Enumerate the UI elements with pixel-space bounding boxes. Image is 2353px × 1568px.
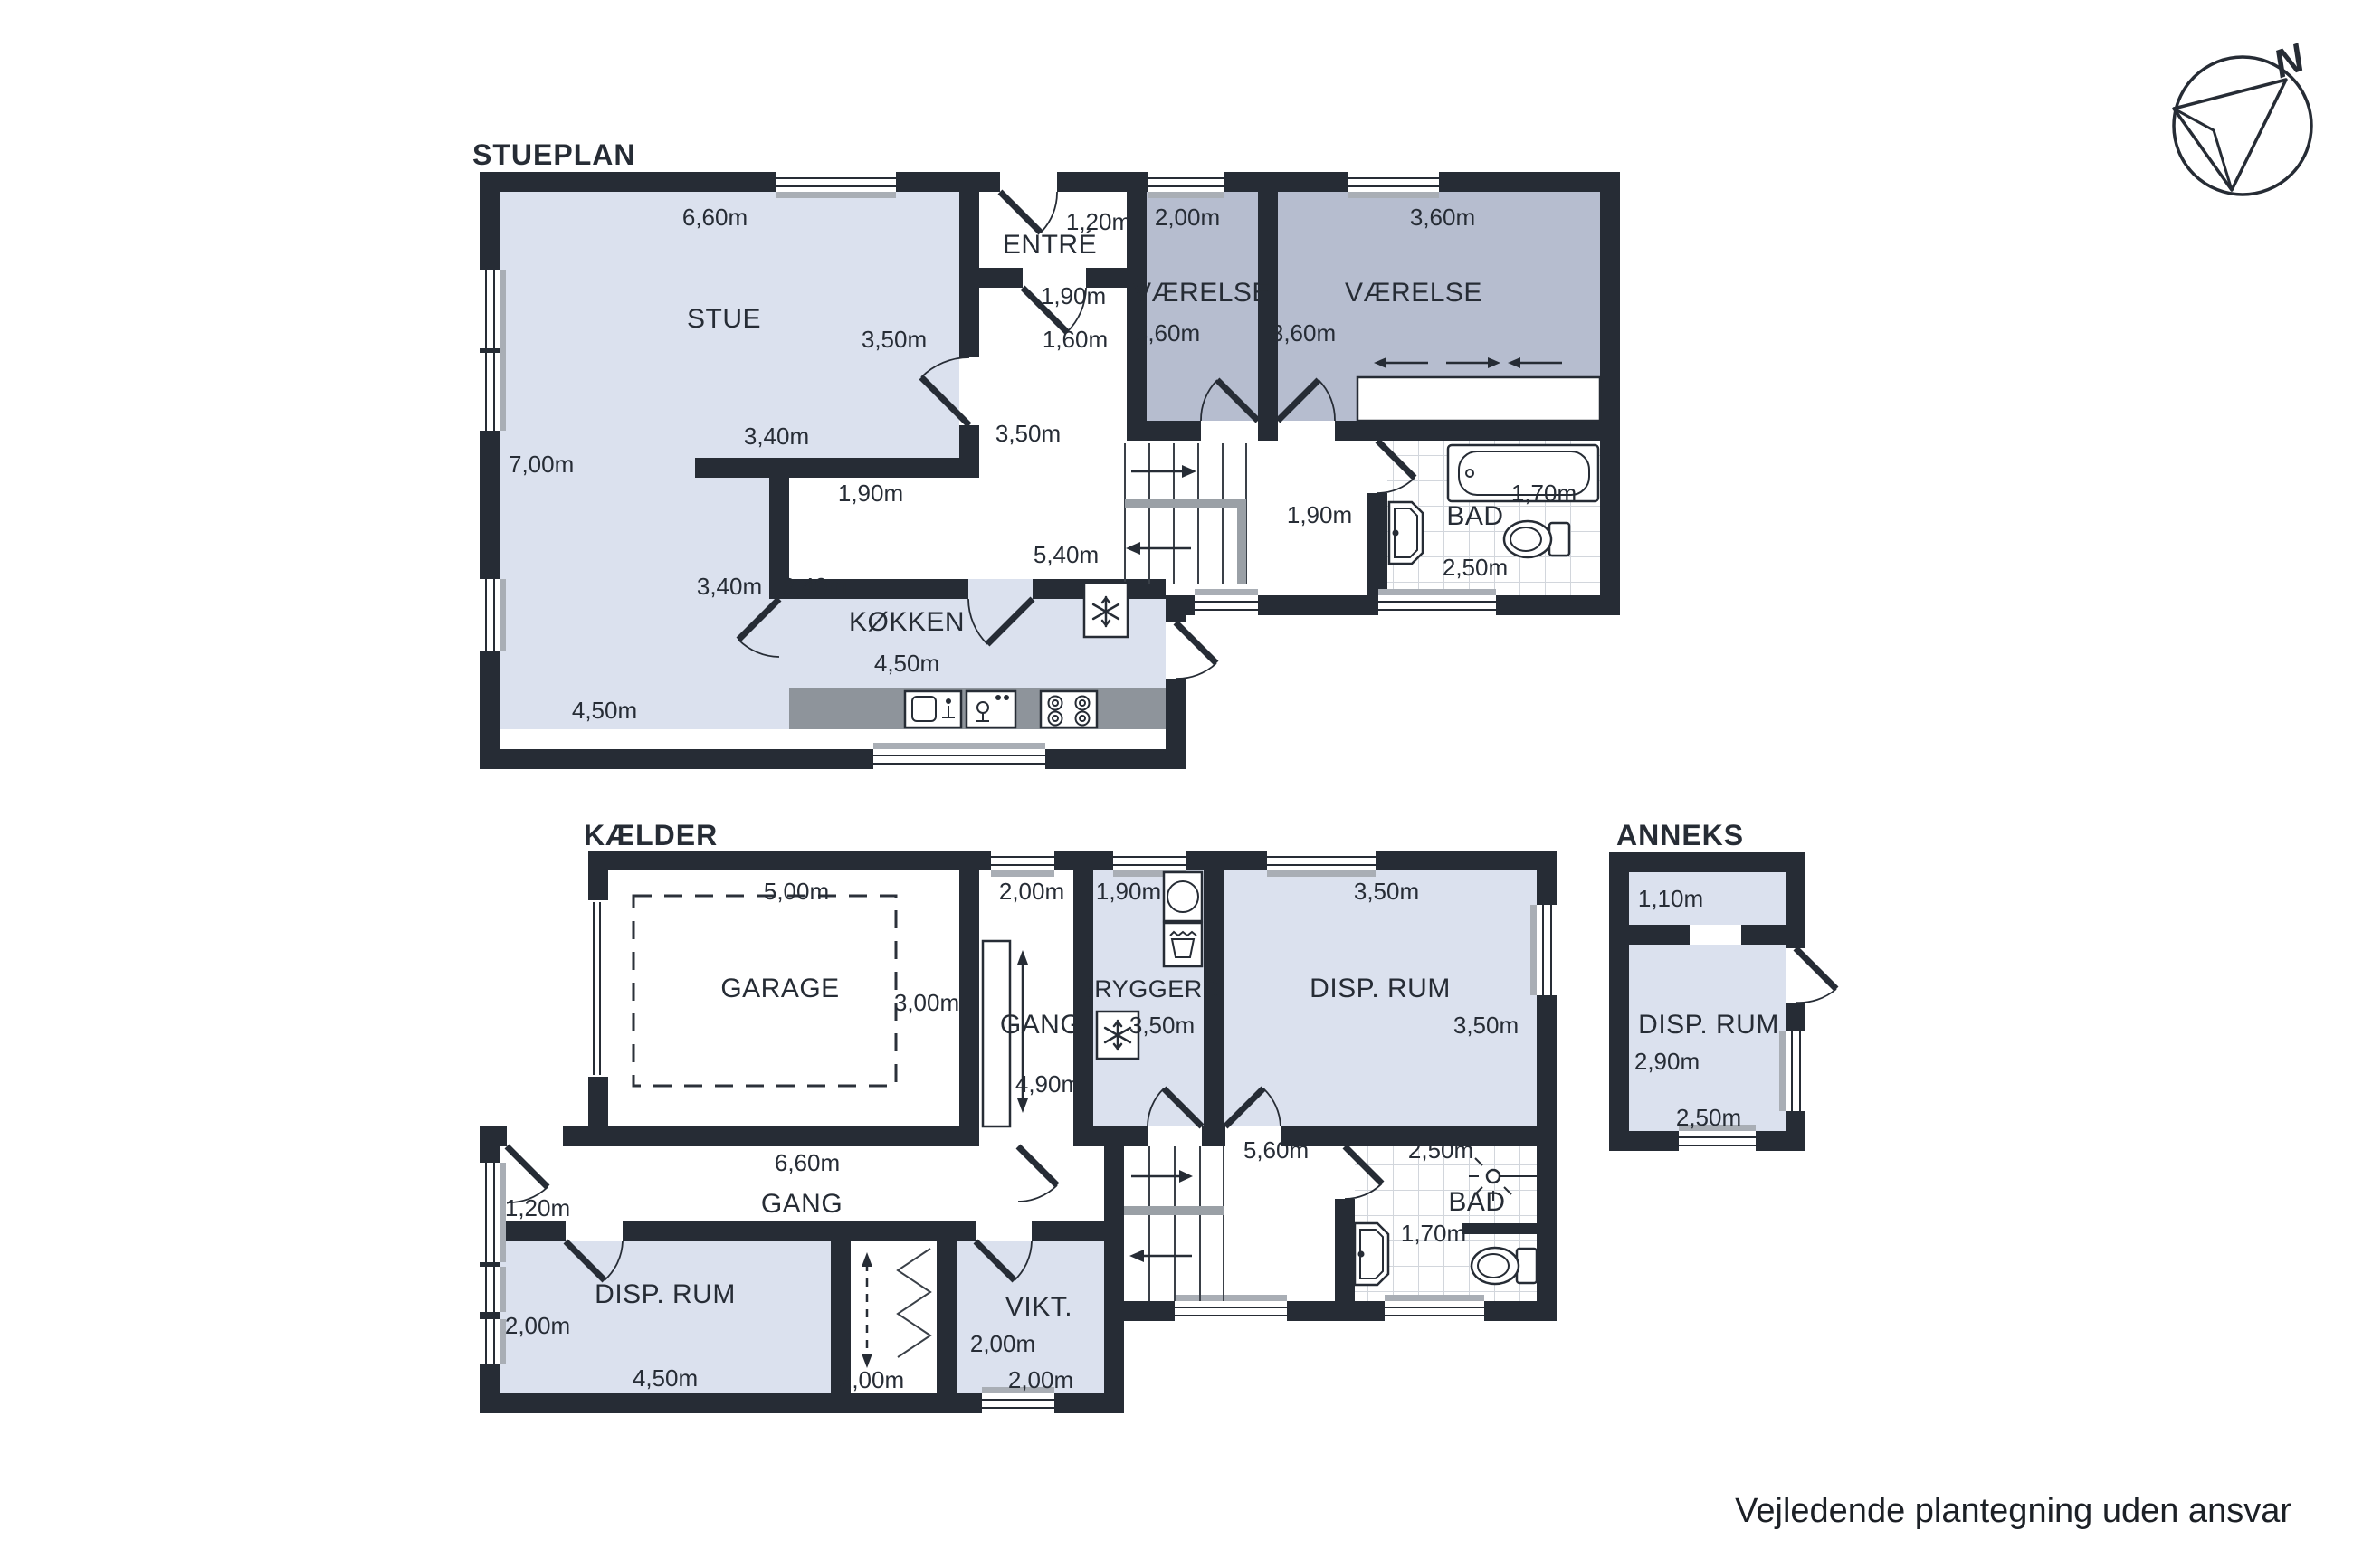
dim-stue-top: 6,60m <box>682 204 748 231</box>
dim-bad-kaelder-top: 2,50m <box>1408 1136 1473 1164</box>
washing-machine-icon <box>1164 872 1202 921</box>
dim-garage-side: 3,00m <box>894 989 959 1016</box>
dim-disp-rum-lower-side: 2,00m <box>505 1312 570 1339</box>
toilet-icon <box>1504 521 1569 557</box>
sink-icon <box>1389 502 1423 564</box>
plan-title-anneks: ANNEKS <box>1616 819 1744 851</box>
room-label-anneks-disp-rum: DISP. RUM <box>1638 1010 1779 1040</box>
room-label-bad: BAD <box>1446 501 1503 531</box>
disclaimer-text: Vejledende plantegning uden ansvar <box>1735 1492 2291 1530</box>
room-label-koekken: KØKKEN <box>849 607 965 637</box>
plan-title-kaelder: KÆLDER <box>584 819 718 851</box>
dim-vaerelse1-top: 2,00m <box>1155 204 1220 231</box>
room-label-bad-kaelder: BAD <box>1448 1187 1505 1217</box>
dim-entre-passage: 1,60m <box>1043 326 1108 353</box>
kaelder-stairs-icon <box>1124 1146 1224 1301</box>
sink-kaelder-icon <box>1355 1223 1388 1285</box>
room-label-stue: STUE <box>687 304 761 334</box>
plan-title-stueplan: STUEPLAN <box>472 138 635 171</box>
stove-icon <box>1041 691 1097 727</box>
room-label-vikt: VIKT. <box>1005 1292 1072 1322</box>
dim-vikt-side: 2,00m <box>970 1330 1035 1357</box>
room-label-disp-rum: DISP. RUM <box>1310 974 1451 1003</box>
dim-disp-rum-lower-bottom: 4,50m <box>633 1364 698 1392</box>
dim-stue-mid-top: 3,40m <box>744 423 809 450</box>
room-label-vaerelse-1: VÆRELSE <box>1133 278 1271 308</box>
dim-vaerelse1-side: 3,60m <box>1135 319 1200 347</box>
room-label-vaerelse-2: VÆRELSE <box>1345 278 1482 308</box>
room-label-gang-upper: GANG <box>1000 1010 1081 1040</box>
kaelder-plan: KÆLDER 5,00m GARAGE 3,00m 2,00m GANG 4,9… <box>480 819 1557 1413</box>
room-label-garage: GARAGE <box>720 974 839 1003</box>
garage-door-opening <box>588 900 608 1077</box>
dim-stair-hall: 5,60m <box>1243 1136 1309 1164</box>
dim-bryggers-top: 1,90m <box>1096 878 1161 905</box>
dim-vaerelse2-top: 3,60m <box>1410 204 1475 231</box>
dim-gang-lower-door: 1,20m <box>505 1194 570 1221</box>
stueplan-stairs-icon <box>1125 443 1246 584</box>
dim-stue-bottom: 4,50m <box>572 697 637 724</box>
kitchen-counter <box>789 688 1166 729</box>
dim-gang-lower-top: 6,60m <box>775 1149 840 1176</box>
anneks-plan: ANNEKS 1,10m DISP. RUM 2,90m 2,50m <box>1616 819 1836 1151</box>
dim-disp-rum-top: 3,50m <box>1354 878 1419 905</box>
dim-hall-bad: 1,90m <box>1287 501 1352 528</box>
dim-anneks-entry: 1,10m <box>1638 885 1703 912</box>
dim-bad-width: 1,70m <box>1511 480 1577 507</box>
closet-strip-icons <box>862 1249 930 1368</box>
dim-vikt-bottom: 2,00m <box>1008 1366 1073 1393</box>
room-label-disp-rum-lower: DISP. RUM <box>595 1279 736 1309</box>
room-label-bryggers: BRYGGERS <box>1078 975 1220 1003</box>
stueplan-plan: STUEPLAN 6,60m STUE 7,00m 3,50m 3,40m 1,… <box>472 138 1610 769</box>
dim-stue-mid-bottom: 1,90m <box>838 480 903 507</box>
dim-stue-door-right: 3,40m <box>782 573 847 600</box>
laundry-sink-icon <box>1164 923 1202 966</box>
dim-stue-right: 3,50m <box>862 326 927 353</box>
floorplan-page: STUEPLAN 6,60m STUE 7,00m 3,50m 3,40m 1,… <box>0 0 2353 1568</box>
compass-icon: N <box>2174 35 2311 195</box>
dim-anneks-bottom: 2,50m <box>1676 1104 1741 1131</box>
dim-bad-kaelder-width: 1,70m <box>1401 1220 1466 1247</box>
dim-stue-door-left: 3,40m <box>697 573 762 600</box>
gang-door-opening <box>507 1126 563 1146</box>
dim-entre-inner: 1,90m <box>1041 282 1106 309</box>
dim-gang-upper-length: 4,90m <box>1015 1070 1081 1098</box>
dim-closet-bottom: 2,00m <box>839 1366 904 1393</box>
dim-entre-door: 1,20m <box>1066 208 1131 235</box>
dim-gang-upper-top: 2,00m <box>999 878 1064 905</box>
kitchen-sink-icon <box>905 691 961 727</box>
dim-disp-rum-side: 3,50m <box>1453 1012 1519 1039</box>
dim-stue-left: 7,00m <box>509 451 574 478</box>
dim-koekken-bottom: 4,50m <box>874 650 939 677</box>
dishwasher-icon <box>967 691 1015 727</box>
entre-door-opening <box>1000 172 1057 192</box>
dim-anneks-side: 2,90m <box>1634 1048 1700 1075</box>
compass-north-label: N <box>2268 35 2311 87</box>
dim-hall-width: 3,50m <box>995 420 1061 447</box>
toilet-kaelder-icon <box>1472 1248 1537 1284</box>
dim-hall-length: 5,40m <box>1034 541 1099 568</box>
room-label-gang-lower: GANG <box>761 1189 843 1219</box>
dim-vaerelse2-side: 3,60m <box>1271 319 1336 347</box>
dim-bryggers-side: 3,50m <box>1129 1012 1195 1039</box>
dim-bad-bottom: 2,50m <box>1443 554 1508 581</box>
freezer-icon <box>1084 583 1128 637</box>
dim-garage-top: 5,00m <box>764 878 829 905</box>
